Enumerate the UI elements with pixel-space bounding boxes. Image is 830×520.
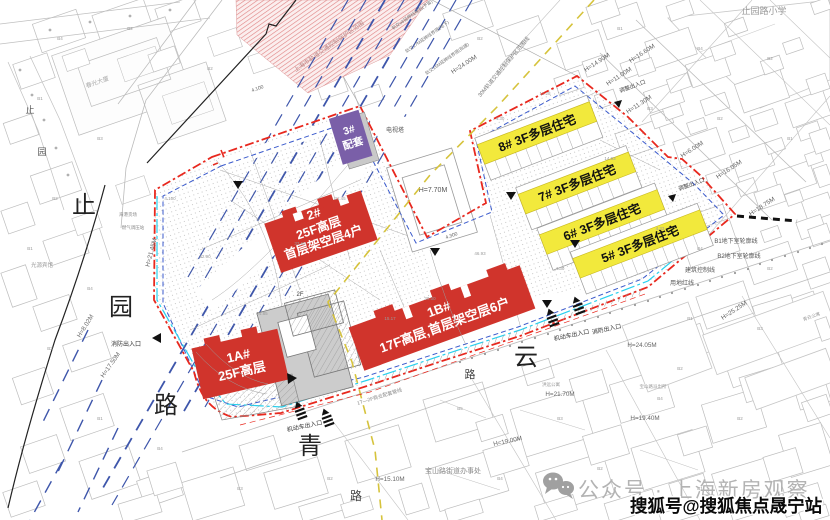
svg-text:电视塔: 电视塔 [386,126,404,134]
svg-text:B3: B3 [647,106,653,111]
svg-text:B2: B2 [597,466,603,471]
svg-text:B2: B2 [47,346,53,351]
svg-text:园: 园 [109,295,133,321]
svg-text:11.28: 11.28 [540,91,551,96]
svg-text:B2: B2 [327,476,333,481]
svg-text:33.65: 33.65 [294,241,306,246]
svg-text:B1: B1 [27,246,33,251]
svg-text:H=21.70M: H=21.70M [545,391,574,398]
svg-text:B1: B1 [787,136,793,141]
svg-text:46.93: 46.93 [474,251,486,256]
svg-text:B5: B5 [457,406,463,411]
svg-text:云: 云 [514,345,538,371]
svg-text:B2: B2 [207,66,213,71]
svg-text:B4: B4 [157,446,163,451]
svg-text:2F: 2F [296,292,303,298]
svg-text:B1: B1 [617,26,623,31]
svg-text:宝山路派出所: 宝山路派出所 [640,383,667,390]
svg-text:止: 止 [25,104,34,115]
svg-text:B2: B2 [717,116,723,121]
svg-text:B1: B1 [37,96,43,101]
svg-text:路: 路 [154,392,178,419]
svg-text:24.85: 24.85 [256,311,268,316]
svg-text:B2: B2 [677,366,683,371]
svg-text:31.45: 31.45 [334,196,346,201]
svg-text:B2地下室轮廓线: B2地下室轮廓线 [717,252,760,260]
svg-text:路: 路 [465,368,476,381]
svg-text:搜狐号@搜狐焦点晟宁站: 搜狐号@搜狐焦点晟宁站 [630,496,823,516]
svg-text:光源宾馆: 光源宾馆 [31,261,54,269]
svg-text:B4: B4 [497,476,503,481]
svg-text:B2: B2 [767,56,773,61]
svg-text:4.30: 4.30 [496,116,505,121]
svg-text:30.00: 30.00 [424,296,436,301]
svg-text:B2: B2 [767,266,773,271]
svg-text:园: 园 [37,147,46,157]
svg-text:H=19.40M: H=19.40M [630,415,659,422]
svg-text:14.93: 14.93 [604,156,616,161]
svg-text:用地红线: 用地红线 [670,279,694,287]
svg-text:H=7.70M: H=7.70M [419,187,448,194]
svg-text:燃气调压站: 燃气调压站 [122,224,145,231]
svg-text:B1: B1 [97,416,103,421]
svg-text:B3: B3 [557,416,563,421]
svg-text:止: 止 [72,192,96,219]
svg-text:4.100: 4.100 [164,196,176,201]
svg-text:B4: B4 [697,46,703,51]
svg-text:B2: B2 [52,196,58,201]
svg-text:B1: B1 [687,316,693,321]
svg-text:32.90: 32.90 [199,254,211,259]
svg-text:B2: B2 [737,416,743,421]
svg-text:宝山路街道办事处: 宝山路街道办事处 [425,466,481,475]
svg-text:H=15.10M: H=15.10M [375,476,404,483]
svg-text:B4: B4 [697,246,703,251]
svg-text:消防出入口: 消防出入口 [111,340,141,348]
svg-text:B3: B3 [237,486,243,491]
svg-text:4.33: 4.33 [656,226,665,231]
svg-text:止园路小学: 止园路小学 [741,5,786,16]
svg-text:4.30: 4.30 [556,266,565,271]
svg-text:B4: B4 [657,396,663,401]
svg-text:H=24.05M: H=24.05M [627,342,656,349]
svg-text:B2: B2 [477,36,483,41]
svg-text:建筑控制线: 建筑控制线 [685,266,715,274]
svg-text:洪远公寓: 洪远公寓 [542,381,560,388]
svg-text:海港货场: 海港货场 [119,211,137,218]
svg-text:B3: B3 [97,136,103,141]
svg-text:路: 路 [350,488,362,503]
svg-text:B2: B2 [127,26,133,31]
svg-text:15.17: 15.17 [384,316,396,321]
svg-text:B3: B3 [757,326,763,331]
svg-text:B4: B4 [57,36,63,41]
svg-text:B1地下室轮廓线: B1地下室轮廓线 [714,237,757,245]
svg-text:B4: B4 [87,286,93,291]
svg-text:青: 青 [298,433,322,460]
